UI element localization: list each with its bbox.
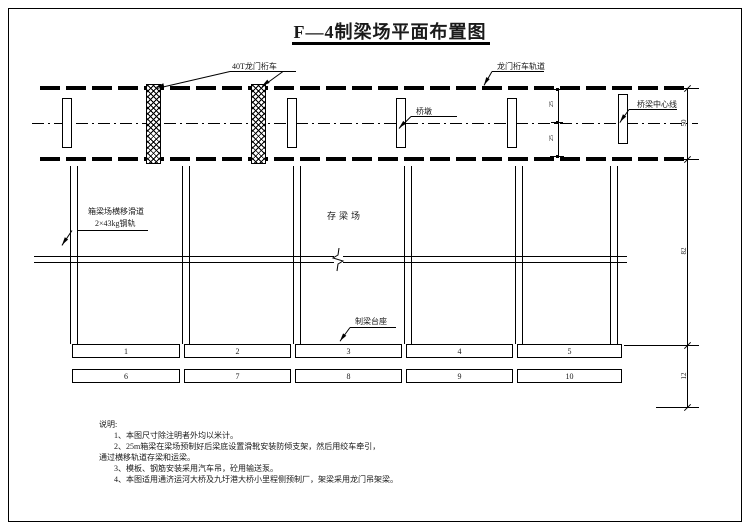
dimension-dot xyxy=(556,155,559,158)
yard-column xyxy=(293,166,301,344)
pedestal-number: 9 xyxy=(458,372,462,381)
note-line: 通过横移轨道存梁和运梁。 xyxy=(99,452,398,463)
pedestal-box: 1 xyxy=(72,344,180,358)
break-mark xyxy=(331,248,345,272)
slideway-label-line1: 箱梁场横移滑道 xyxy=(88,207,144,216)
yard-column xyxy=(70,166,78,344)
pedestal-box: 9 xyxy=(406,369,513,383)
pedestal-number: 7 xyxy=(236,372,240,381)
yard-column xyxy=(182,166,190,344)
gantry-track-label: 龙门桁车轨道 xyxy=(497,62,545,71)
slideway-label-line2: 2×43kg钢轨 xyxy=(95,219,136,228)
pedestal-number: 10 xyxy=(566,372,574,381)
pedestal-number: 2 xyxy=(236,347,240,356)
dimension-value: 50 xyxy=(680,113,688,133)
gantry-truss-leg xyxy=(251,84,266,164)
title-underline xyxy=(292,42,490,45)
pedestal-box: 3 xyxy=(295,344,402,358)
dimension-extension xyxy=(656,407,699,408)
pedestal-number: 3 xyxy=(347,347,351,356)
pedestal-number: 1 xyxy=(124,347,128,356)
bridge-centerline xyxy=(32,123,698,124)
dimension-extension xyxy=(666,88,699,89)
notes-block: 说明: 1、本图尺寸除注明者外均以米计。 2、25m箱梁在梁场预制好后梁底设置滑… xyxy=(99,419,398,485)
dimension-value: 25 xyxy=(549,96,555,112)
dimension-extension xyxy=(666,159,699,160)
dimension-dot xyxy=(556,88,559,91)
slideway-label-underline xyxy=(72,230,148,231)
note-line: 4、本图适用通济运河大桥及九圩港大桥小里程侧预制厂，架梁采用龙门吊架梁。 xyxy=(99,474,398,485)
pier-label-underline xyxy=(411,116,457,117)
pedestal-box: 10 xyxy=(517,369,622,383)
gantry-truss-leg xyxy=(146,84,161,164)
yard-column xyxy=(515,166,523,344)
pedestal-number: 8 xyxy=(347,372,351,381)
pedestal-box: 6 xyxy=(72,369,180,383)
gantry-rail-top xyxy=(40,86,688,90)
yard-column xyxy=(610,166,618,344)
note-line: 2、25m箱梁在梁场预制好后梁底设置滑靴安装防倾支架，然后用绞车牵引， xyxy=(99,441,398,452)
centerline-label-underline xyxy=(629,109,677,110)
pedestal-box: 8 xyxy=(295,369,402,383)
pedestal-box: 5 xyxy=(517,344,622,358)
gantry-crane-label-underline xyxy=(230,71,296,72)
pedestal-box: 2 xyxy=(184,344,291,358)
pedestal-label-underline xyxy=(350,327,396,328)
gantry-crane-label: 40T龙门桁车 xyxy=(232,62,277,71)
storage-yard-label: 存梁场 xyxy=(327,212,363,221)
bridge-centerline-label: 桥梁中心线 xyxy=(637,100,677,109)
pedestal-label: 制梁台座 xyxy=(355,317,387,326)
dimension-value: 25 xyxy=(549,130,555,146)
pier xyxy=(287,98,297,148)
dimension-value: 82 xyxy=(680,241,688,261)
pedestal-box: 7 xyxy=(184,369,291,383)
pedestal-number: 4 xyxy=(458,347,462,356)
pedestal-box: 4 xyxy=(406,344,513,358)
pier xyxy=(507,98,517,148)
note-line: 1、本图尺寸除注明者外均以米计。 xyxy=(99,430,398,441)
notes-heading: 说明: xyxy=(99,419,398,430)
dimension-dot xyxy=(556,121,559,124)
pedestal-number: 5 xyxy=(568,347,572,356)
drawing-title: F—4制梁场平面布置图 xyxy=(240,18,540,44)
pier xyxy=(62,98,72,148)
pedestal-number: 6 xyxy=(124,372,128,381)
drawing-sheet: F—4制梁场平面布置图 40T龙门桁车 龙门桁车轨道 桥梁中心线 桥墩 25 2… xyxy=(0,0,749,530)
pier-label: 桥墩 xyxy=(416,107,432,116)
yard-column xyxy=(404,166,412,344)
gantry-rail-bottom xyxy=(40,157,688,161)
note-line: 3、模板、钢筋安装采用汽车吊，砼用输送泵。 xyxy=(99,463,398,474)
dimension-value: 12 xyxy=(680,366,688,386)
gantry-track-label-underline xyxy=(492,71,544,72)
